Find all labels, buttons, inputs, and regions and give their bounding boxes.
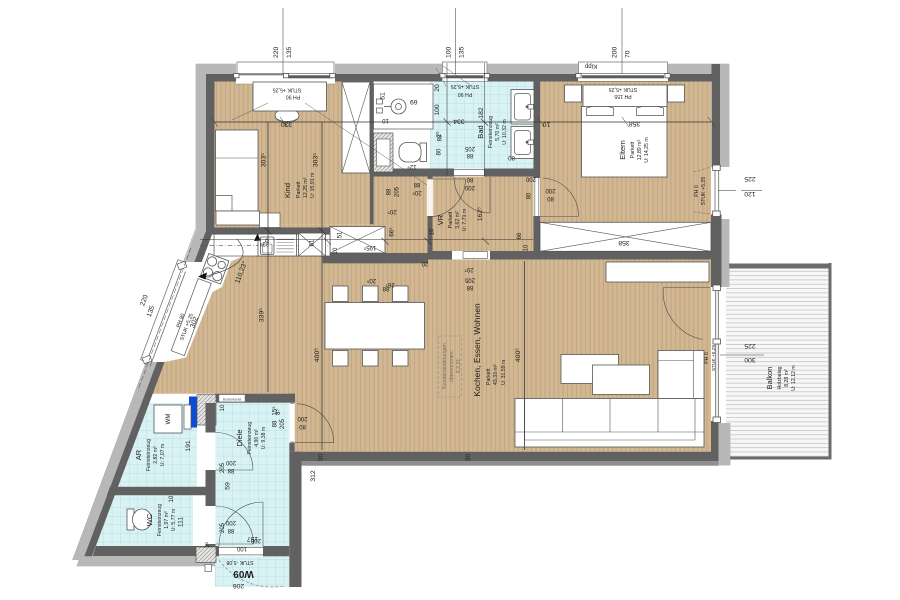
svg-text:20⁵: 20⁵ — [387, 208, 397, 215]
svg-text:STUK +5,25: STUK +5,25 — [701, 177, 707, 206]
svg-text:U: 31,59 m: U: 31,59 m — [501, 360, 507, 385]
svg-text:200: 200 — [297, 415, 308, 421]
svg-text:10: 10 — [430, 228, 436, 235]
svg-text:übernommen:: übernommen: — [449, 350, 455, 382]
svg-text:Holzbelag: Holzbelag — [777, 366, 783, 389]
svg-text:STUK +5,25: STUK +5,25 — [711, 345, 717, 372]
svg-text:10: 10 — [382, 117, 389, 123]
svg-text:162⁵: 162⁵ — [477, 207, 484, 221]
svg-text:Parkett: Parkett — [448, 211, 454, 228]
svg-text:200: 200 — [612, 46, 619, 58]
svg-text:8,28 m²: 8,28 m² — [784, 369, 790, 387]
svg-text:200: 200 — [225, 459, 236, 465]
svg-text:358: 358 — [629, 120, 641, 127]
svg-text:Kind: Kind — [283, 183, 292, 198]
svg-text:2,82 m²: 2,82 m² — [153, 446, 159, 464]
svg-text:STUK -5,08: STUK -5,08 — [226, 559, 253, 565]
svg-text:88: 88 — [382, 285, 389, 291]
svg-text:400⁵: 400⁵ — [314, 348, 321, 362]
svg-text:5,70 m²: 5,70 m² — [495, 123, 501, 141]
svg-text:205: 205 — [464, 277, 475, 283]
svg-text:59: 59 — [225, 482, 232, 490]
svg-text:Parkett: Parkett — [296, 181, 302, 198]
svg-text:Feinsteinzeug: Feinsteinzeug — [488, 116, 494, 148]
svg-text:4,90 m²: 4,90 m² — [254, 429, 260, 447]
svg-text:W09: W09 — [233, 568, 254, 579]
svg-text:300: 300 — [744, 356, 756, 363]
svg-text:Bodenkanal: Bodenkanal — [223, 397, 242, 401]
svg-text:30: 30 — [318, 454, 325, 462]
svg-text:Balkon: Balkon — [765, 367, 774, 390]
svg-text:80: 80 — [438, 134, 444, 141]
svg-text:88: 88 — [227, 527, 234, 533]
svg-text:120: 120 — [744, 190, 756, 197]
svg-text:Kochen, Essen, Wohnen: Kochen, Essen, Wohnen — [472, 303, 482, 397]
svg-text:66: 66 — [517, 232, 523, 239]
svg-text:69: 69 — [410, 100, 418, 107]
svg-text:339⁵: 339⁵ — [259, 308, 266, 322]
svg-text:U: 12,12 m: U: 12,12 m — [791, 365, 797, 390]
svg-text:PH 0: PH 0 — [704, 352, 710, 364]
svg-text:U: 7,71 m: U: 7,71 m — [462, 209, 468, 232]
svg-text:80: 80 — [527, 192, 533, 199]
svg-text:205: 205 — [395, 186, 401, 197]
svg-text:VR: VR — [436, 214, 445, 225]
svg-text:2.2.21: 2.2.21 — [456, 359, 462, 374]
svg-text:200: 200 — [250, 537, 261, 543]
svg-text:Eltern: Eltern — [618, 140, 627, 160]
svg-text:182: 182 — [478, 107, 485, 119]
svg-text:80: 80 — [466, 176, 473, 182]
svg-text:135: 135 — [459, 46, 466, 58]
svg-text:88: 88 — [466, 152, 473, 158]
svg-text:3,62 m²: 3,62 m² — [455, 211, 461, 229]
svg-text:43,33 m²: 43,33 m² — [493, 364, 499, 385]
svg-text:111: 111 — [178, 517, 185, 528]
svg-text:206: 206 — [233, 582, 245, 589]
svg-text:100: 100 — [236, 545, 247, 551]
svg-text:10: 10 — [169, 495, 175, 502]
svg-text:51: 51 — [380, 92, 387, 100]
svg-text:7⁰: 7⁰ — [205, 542, 212, 548]
svg-text:80: 80 — [437, 148, 443, 155]
svg-text:195⁵: 195⁵ — [363, 244, 376, 251]
svg-text:Feinsteinzeug: Feinsteinzeug — [157, 504, 163, 536]
svg-text:200: 200 — [525, 176, 536, 182]
svg-text:U: 9,38 m: U: 9,38 m — [261, 427, 267, 450]
svg-text:400⁵: 400⁵ — [515, 348, 522, 362]
svg-text:205: 205 — [220, 522, 226, 533]
svg-text:70: 70 — [625, 50, 632, 58]
svg-text:100: 100 — [434, 104, 441, 116]
svg-text:80: 80 — [299, 423, 306, 429]
svg-text:Parkett: Parkett — [630, 141, 636, 158]
svg-text:191: 191 — [185, 440, 192, 452]
svg-text:Kipp: Kipp — [584, 63, 597, 69]
svg-text:205: 205 — [464, 145, 475, 151]
svg-text:AR: AR — [134, 449, 143, 460]
svg-text:61: 61 — [310, 239, 316, 246]
svg-text:51: 51 — [338, 231, 344, 238]
svg-text:10: 10 — [543, 121, 551, 128]
svg-text:STUK +5,25: STUK +5,25 — [609, 86, 638, 92]
svg-text:200: 200 — [225, 519, 236, 525]
svg-text:Parkett: Parkett — [486, 368, 492, 385]
svg-text:10: 10 — [524, 244, 530, 251]
svg-text:312: 312 — [310, 470, 317, 482]
svg-text:20: 20 — [434, 84, 441, 92]
svg-text:334: 334 — [453, 118, 465, 125]
svg-text:88: 88 — [227, 467, 234, 473]
svg-text:205: 205 — [220, 462, 226, 473]
svg-text:1,97 m²: 1,97 m² — [164, 511, 170, 529]
svg-text:330: 330 — [281, 121, 293, 128]
svg-text:10: 10 — [220, 404, 226, 411]
svg-text:PH 90: PH 90 — [286, 94, 301, 100]
svg-text:88: 88 — [387, 188, 393, 195]
svg-text:12,89 m²: 12,89 m² — [637, 139, 643, 160]
svg-text:100: 100 — [446, 46, 453, 58]
svg-text:200: 200 — [545, 187, 556, 193]
svg-text:12⁸: 12⁸ — [407, 163, 417, 170]
svg-text:Diele: Diele — [235, 429, 244, 446]
svg-text:U: 5,77 m: U: 5,77 m — [171, 509, 177, 532]
svg-text:12,25 m²: 12,25 m² — [303, 177, 309, 198]
svg-text:225: 225 — [744, 175, 756, 182]
svg-text:20: 20 — [421, 260, 428, 266]
svg-text:WC: WC — [145, 513, 154, 526]
svg-text:225: 225 — [744, 342, 756, 349]
svg-text:STUK +5,25: STUK +5,25 — [273, 87, 302, 93]
svg-text:80: 80 — [508, 154, 515, 160]
svg-text:U: 7,07 m: U: 7,07 m — [160, 444, 166, 467]
svg-text:88: 88 — [466, 284, 473, 290]
svg-text:Kundenänderungen: Kundenänderungen — [442, 343, 448, 389]
svg-text:303⁵: 303⁵ — [313, 153, 320, 167]
svg-text:80: 80 — [547, 195, 554, 201]
svg-text:303⁵: 303⁵ — [261, 153, 268, 167]
svg-text:66⁵: 66⁵ — [389, 227, 396, 237]
svg-text:135: 135 — [286, 46, 293, 58]
svg-text:8⁵: 8⁵ — [275, 409, 282, 415]
svg-text:PH 0: PH 0 — [694, 185, 700, 197]
svg-text:U: 15,91 m: U: 15,91 m — [310, 173, 316, 198]
svg-text:Bad: Bad — [476, 125, 485, 138]
svg-text:220: 220 — [273, 46, 280, 58]
svg-text:Feinsteinzeug: Feinsteinzeug — [247, 422, 253, 454]
svg-text:WM: WM — [166, 414, 172, 425]
svg-text:205: 205 — [280, 418, 286, 429]
svg-text:88: 88 — [273, 420, 279, 427]
svg-text:STUK +5,25: STUK +5,25 — [451, 83, 480, 89]
svg-text:200: 200 — [464, 184, 475, 190]
svg-text:10: 10 — [333, 247, 339, 254]
svg-text:88: 88 — [413, 181, 420, 187]
svg-text:PH 155: PH 155 — [614, 93, 631, 99]
svg-text:20⁵: 20⁵ — [412, 189, 422, 196]
svg-text:30: 30 — [465, 454, 472, 462]
svg-text:U: 10,32 m: U: 10,32 m — [502, 119, 508, 144]
svg-text:20⁵: 20⁵ — [464, 266, 474, 273]
svg-text:U: 14,25 m: U: 14,25 m — [644, 137, 650, 162]
svg-text:20⁵: 20⁵ — [366, 277, 376, 284]
svg-text:PH 90: PH 90 — [458, 91, 473, 97]
svg-text:358: 358 — [618, 239, 630, 246]
svg-text:Feinsteinzeug: Feinsteinzeug — [146, 439, 152, 471]
